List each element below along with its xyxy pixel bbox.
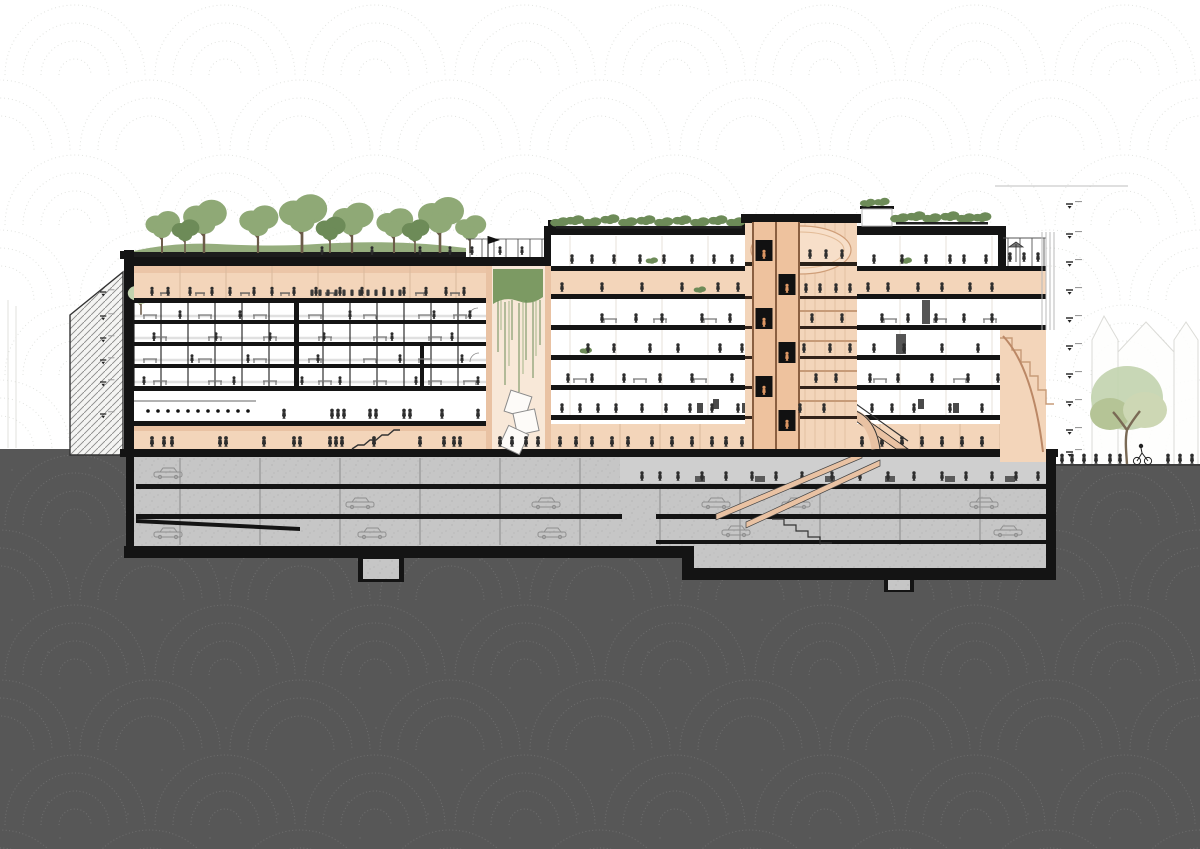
restaurant-floor xyxy=(134,266,548,298)
sidewalk-line xyxy=(1056,464,1200,466)
tower-roof xyxy=(741,214,861,223)
main-building-section xyxy=(120,194,1054,462)
central-tower xyxy=(741,214,861,449)
mezzanine-floor xyxy=(134,391,548,421)
atrium-wall-right xyxy=(545,266,551,449)
ground-floor-slab xyxy=(120,449,1058,457)
stepped-cascade xyxy=(1000,330,1054,462)
roof-penthouse xyxy=(862,209,892,226)
building-section-svg xyxy=(0,0,1200,849)
left-cut-wall xyxy=(124,250,134,457)
hanging-green-wall xyxy=(493,269,543,304)
left-roof-slab xyxy=(125,257,548,266)
right-roof-east xyxy=(855,226,1003,235)
atrium-wall-left xyxy=(486,266,492,449)
elevator-shafts xyxy=(753,222,799,449)
left-ground-floor xyxy=(134,426,548,449)
section-drawing-page xyxy=(0,0,1200,849)
